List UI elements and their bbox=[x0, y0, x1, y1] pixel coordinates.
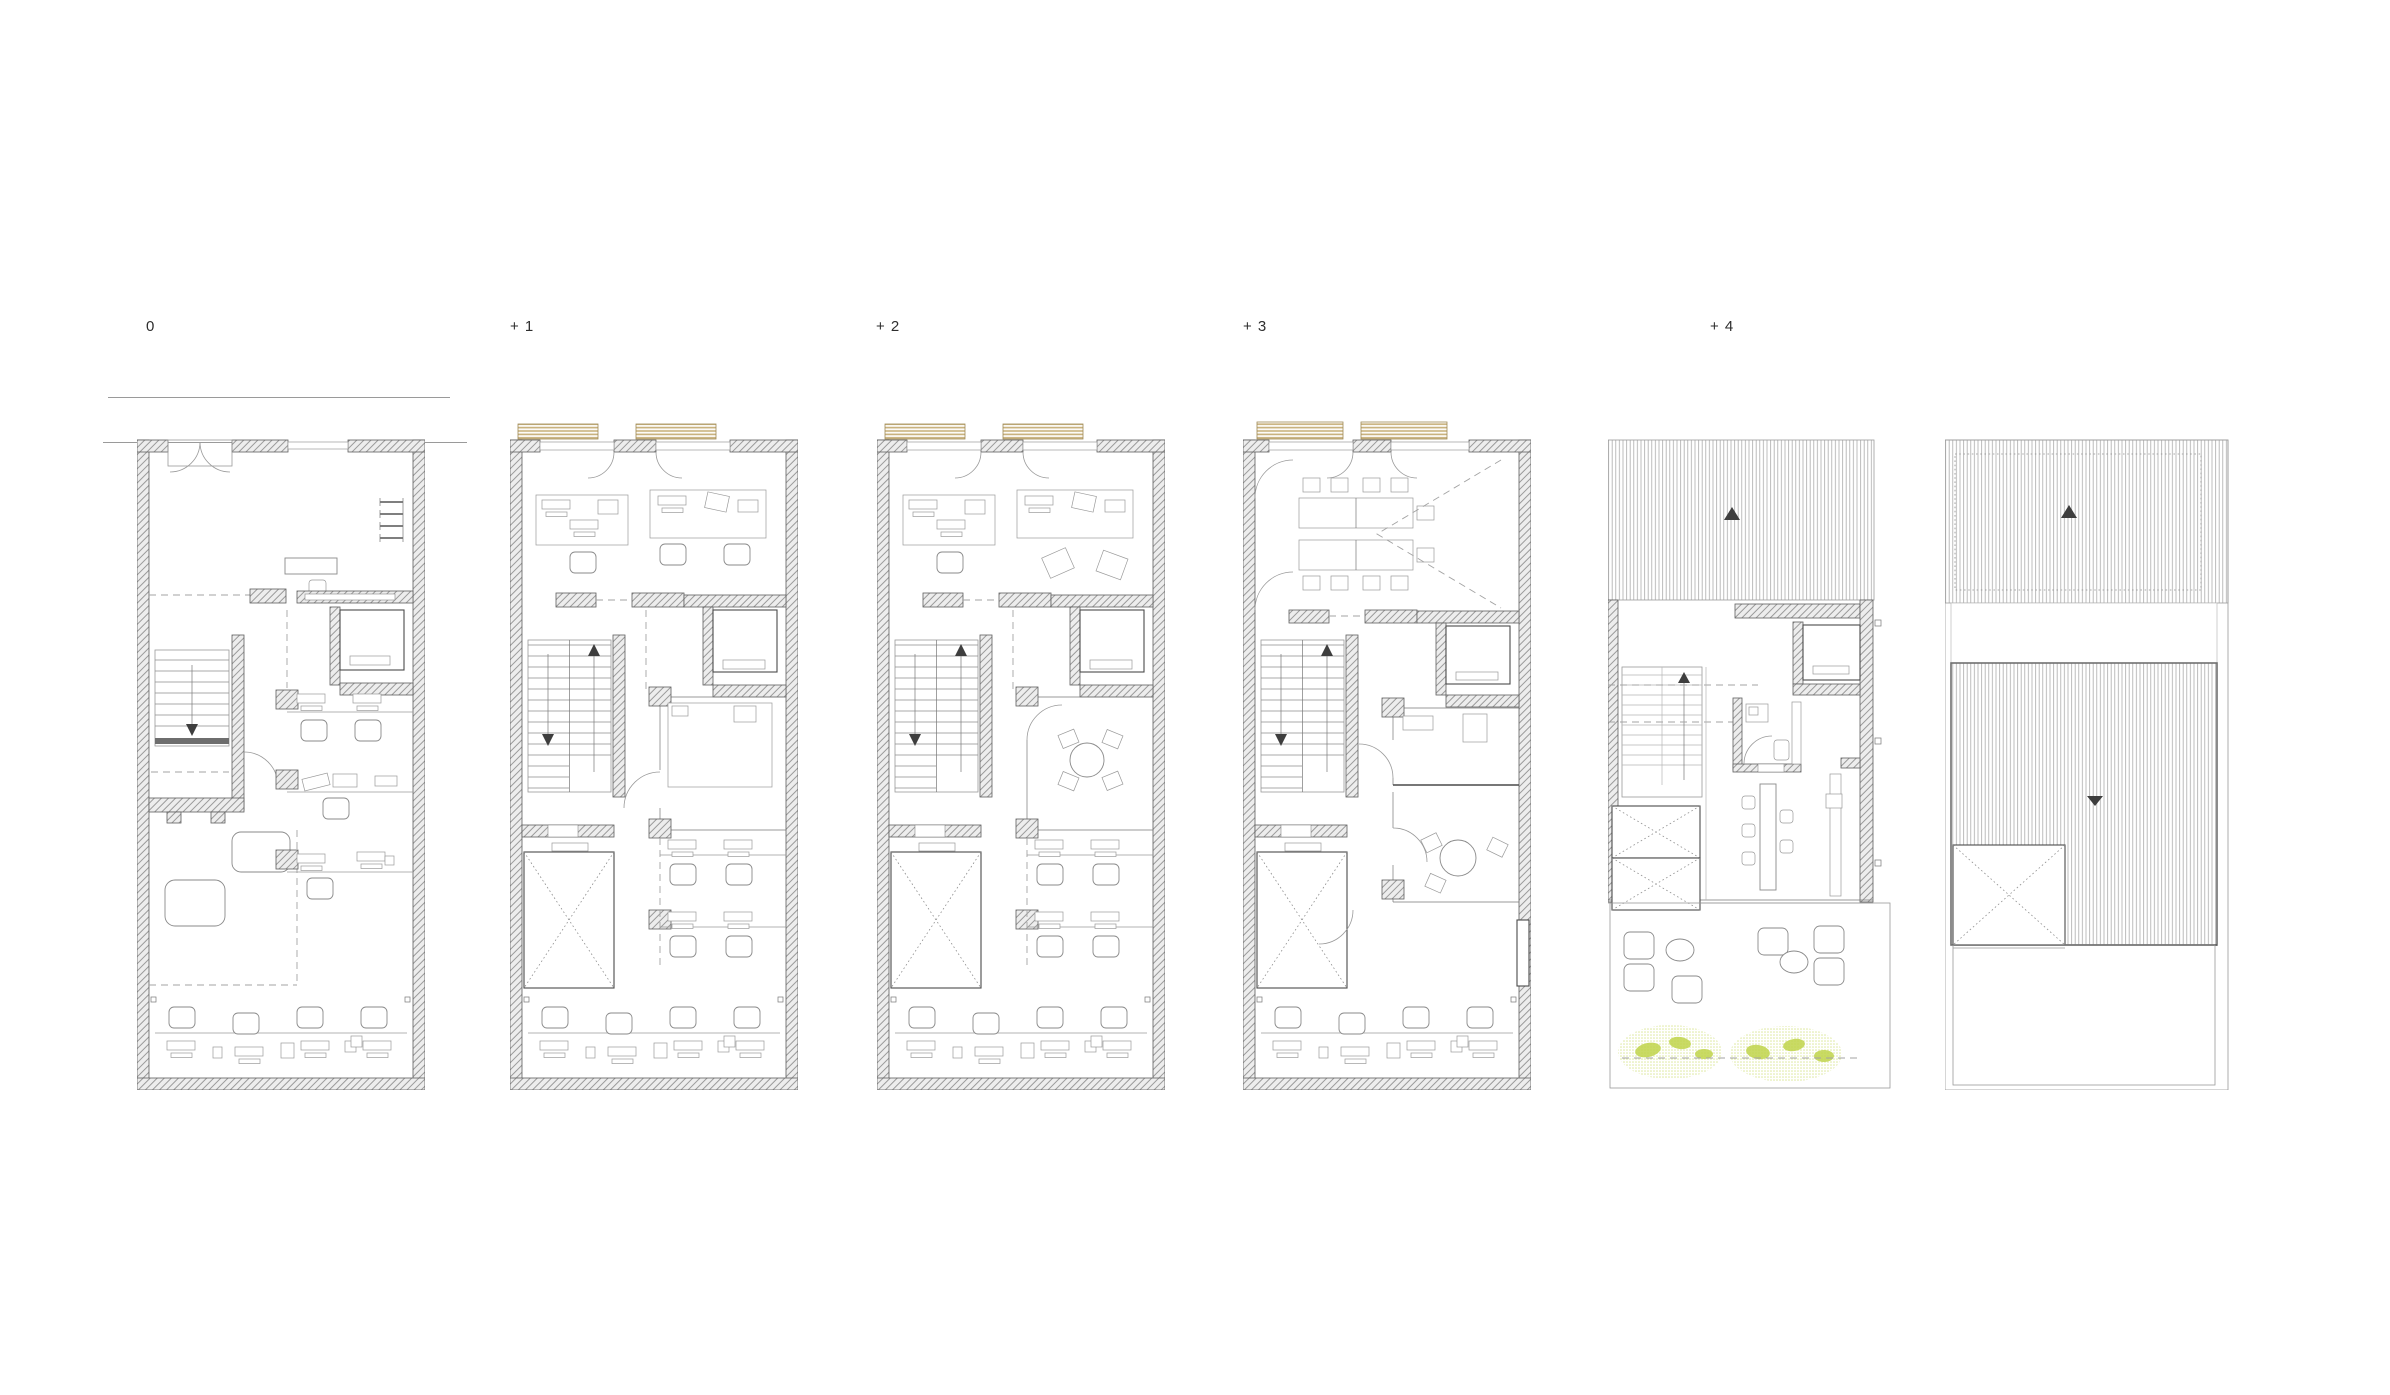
window-desk-row bbox=[151, 997, 410, 1064]
level-label-4: + 4 bbox=[1710, 318, 1734, 335]
elevator bbox=[524, 843, 614, 988]
elevator bbox=[1257, 843, 1347, 988]
bathroom bbox=[1733, 698, 1801, 772]
beanbag bbox=[1042, 548, 1075, 579]
floor-plan-level-3 bbox=[1243, 420, 1531, 1090]
light-well bbox=[330, 607, 413, 695]
office-room-lower bbox=[1319, 792, 1529, 986]
desk-bays bbox=[1016, 838, 1153, 965]
main-roof bbox=[1945, 440, 2228, 603]
level-label-3: + 3 bbox=[1243, 318, 1267, 335]
light-well bbox=[1070, 607, 1153, 697]
floor-plan-sheet: 0 + 1 + 2 + 3 + 4 bbox=[0, 0, 2390, 1395]
lower-terrace bbox=[1953, 945, 2215, 1085]
awnings bbox=[885, 424, 1083, 439]
stair bbox=[151, 635, 278, 810]
light-well bbox=[1436, 623, 1519, 707]
zone-divider bbox=[149, 589, 413, 603]
zone-divider bbox=[556, 593, 786, 607]
vegetation bbox=[1618, 1025, 1858, 1082]
window-desk-row bbox=[524, 997, 783, 1064]
floor-plan-level-1 bbox=[510, 420, 798, 1090]
level-label-0: 0 bbox=[146, 318, 155, 335]
skylight-shaft bbox=[1793, 622, 1860, 695]
shop-window bbox=[288, 442, 348, 449]
stair bbox=[1255, 635, 1358, 837]
desk-bays bbox=[649, 838, 786, 965]
elevator bbox=[1612, 806, 1700, 910]
floor-plan-level-2 bbox=[877, 420, 1165, 1090]
stair bbox=[889, 635, 992, 837]
level-label-2: + 2 bbox=[876, 318, 900, 335]
window-desk-row bbox=[1257, 997, 1516, 1064]
roof-gap bbox=[1951, 603, 2217, 663]
beanbag bbox=[1096, 550, 1128, 580]
table bbox=[285, 558, 337, 574]
side-window bbox=[1517, 920, 1529, 986]
office-room-upper bbox=[1359, 698, 1519, 785]
zone-divider bbox=[923, 593, 1153, 607]
lounge bbox=[149, 830, 297, 985]
level-label-1: + 1 bbox=[510, 318, 534, 335]
property-line bbox=[108, 397, 450, 398]
stair bbox=[522, 635, 625, 837]
core-room bbox=[149, 798, 244, 823]
roof-over-back bbox=[1608, 440, 1874, 600]
office-furniture bbox=[903, 490, 1133, 580]
zone-divider bbox=[1289, 610, 1519, 623]
coat-rack bbox=[380, 498, 403, 542]
entrance-doors bbox=[168, 440, 232, 472]
floor-plan-roof bbox=[1945, 420, 2233, 1090]
floor-plan-level-0 bbox=[137, 420, 425, 1090]
light-well bbox=[703, 607, 786, 697]
conference-room bbox=[1255, 460, 1501, 610]
stair-up-arrow bbox=[1678, 672, 1690, 683]
awnings bbox=[518, 424, 716, 439]
office-furniture bbox=[536, 490, 766, 573]
penthouse-roof bbox=[1951, 663, 2217, 948]
stair-down-arrow bbox=[186, 724, 198, 736]
elevator bbox=[891, 843, 981, 988]
window-desk-row bbox=[891, 997, 1150, 1064]
floor-plan-level-4 bbox=[1608, 420, 1896, 1090]
awnings bbox=[1257, 422, 1447, 439]
outer-walls bbox=[1243, 440, 1531, 1090]
kitchen bbox=[1742, 758, 1860, 896]
